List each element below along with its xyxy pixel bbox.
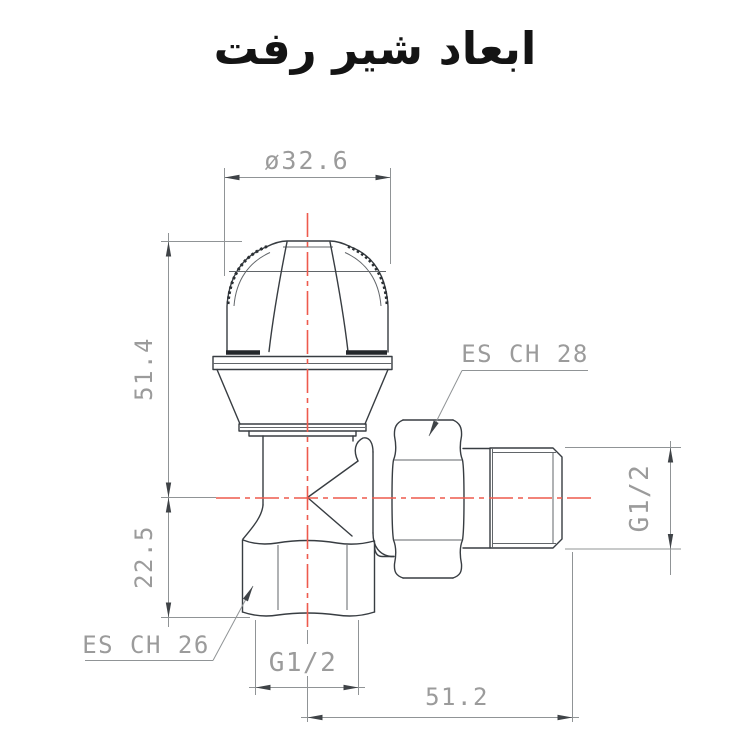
dim-value-height-upper: 51.4 bbox=[130, 337, 158, 401]
leader-arrow bbox=[243, 586, 253, 601]
dim-arrow-down bbox=[166, 603, 171, 618]
dim-arrow-up bbox=[668, 448, 673, 463]
dim-arrow-left bbox=[308, 715, 323, 720]
female-hex bbox=[243, 540, 375, 616]
hex-bottom-wavy bbox=[243, 612, 375, 616]
taper-right-edge bbox=[365, 370, 388, 425]
nut-hex-label: ES CH 28 bbox=[461, 340, 589, 368]
dim-value-side-thread: G1/2 bbox=[625, 464, 655, 533]
collar bbox=[213, 357, 392, 370]
body-pipe-top-fillet bbox=[355, 438, 373, 461]
handle-shoulder-inner-left bbox=[234, 253, 270, 307]
dim-value-top-diameter: ø32.6 bbox=[264, 146, 349, 175]
label-es-ch-26: ES CH 26 bbox=[82, 586, 253, 661]
dim-arrow-right bbox=[376, 175, 391, 180]
dim-value-bottom-thread: G1/2 bbox=[269, 648, 338, 678]
label-es-ch-28: ES CH 28 bbox=[429, 340, 589, 436]
dim-arrow-up bbox=[166, 242, 171, 257]
body-cone-upper bbox=[308, 461, 359, 498]
dim-arrow-right bbox=[558, 715, 573, 720]
dim-arrow-left bbox=[225, 175, 240, 180]
dim-arrow-down bbox=[668, 534, 673, 549]
handle-grip-left bbox=[269, 242, 287, 352]
flange-step bbox=[249, 431, 356, 436]
dim-value-side-length: 51.2 bbox=[425, 683, 489, 711]
leader-arrow bbox=[429, 421, 439, 437]
body-cone-lower bbox=[308, 498, 353, 537]
dim-arrow-up bbox=[166, 498, 171, 513]
nut-right-edge bbox=[453, 420, 464, 578]
taper-left-edge bbox=[217, 370, 240, 425]
technical-drawing-page: ابعاد شیر رفت bbox=[0, 0, 750, 750]
dim-left-heights: 51.4 22.5 bbox=[130, 233, 250, 627]
body-flare-left bbox=[243, 505, 263, 539]
valve-body bbox=[243, 436, 394, 557]
valve-drawing: ø32.6 51.4 22.5 ES CH 28 ES CH 26 bbox=[0, 0, 750, 750]
bonnet-taper bbox=[217, 370, 388, 437]
handle-grip-right bbox=[330, 242, 348, 352]
hex-top-wavy bbox=[243, 540, 374, 544]
union-nut bbox=[392, 420, 464, 578]
dim-arrow-left bbox=[256, 685, 271, 690]
nut-left-edge bbox=[392, 420, 403, 578]
dim-arrow-right bbox=[344, 685, 359, 690]
dim-value-height-lower: 22.5 bbox=[130, 525, 158, 589]
dim-side-thread: G1/2 bbox=[565, 441, 681, 575]
body-hex-label: ES CH 26 bbox=[82, 631, 210, 659]
dim-arrow-down bbox=[166, 483, 171, 498]
handle-shoulder-inner-right bbox=[345, 253, 381, 307]
